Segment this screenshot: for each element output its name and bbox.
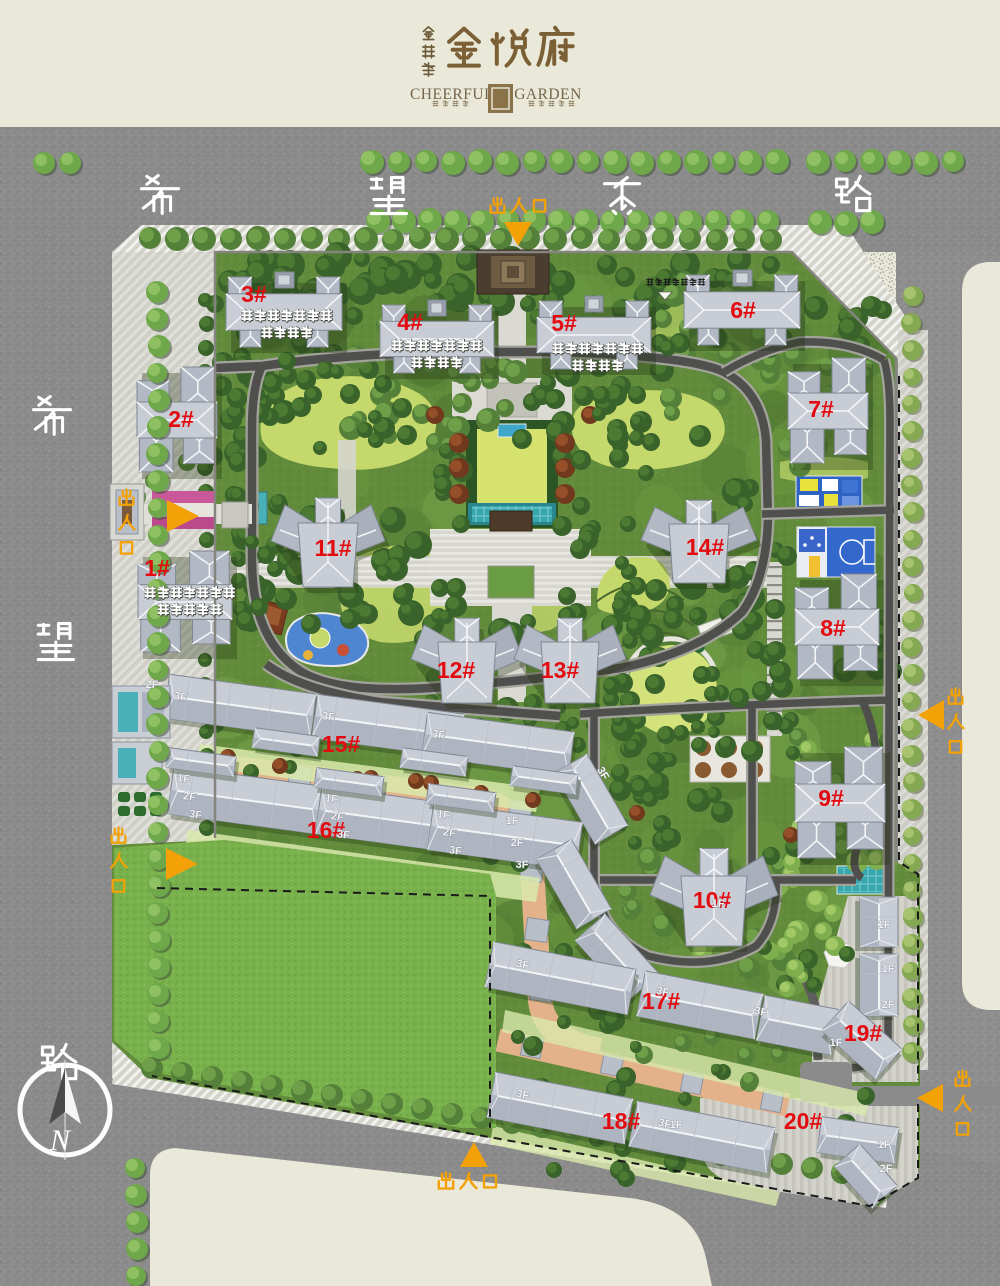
svg-text:20#: 20# [784,1108,823,1134]
svg-text:1F: 1F [882,963,895,975]
svg-text:2F: 2F [882,999,895,1011]
svg-text:1F: 1F [830,1037,843,1049]
svg-text:2F: 2F [442,826,457,840]
svg-text:N: N [49,1124,72,1157]
svg-text:2F: 2F [880,1163,893,1175]
svg-text:3#: 3# [241,281,267,307]
svg-text:6#: 6# [730,297,756,323]
svg-text:18#: 18# [602,1108,641,1134]
svg-text:1F: 1F [878,919,891,931]
svg-text:8#: 8# [820,615,846,641]
svg-text:3F: 3F [448,844,463,858]
svg-text:3F: 3F [515,958,530,972]
svg-text:1#: 1# [144,555,170,581]
svg-text:3F: 3F [321,710,336,724]
svg-text:5#: 5# [551,310,577,336]
svg-text:3F: 3F [516,859,529,871]
svg-text:3F: 3F [336,828,351,842]
svg-text:1F: 1F [878,1139,891,1151]
svg-text:3F: 3F [431,728,446,742]
svg-text:3F: 3F [515,1088,530,1102]
svg-text:2F: 2F [146,679,159,691]
svg-text:1F: 1F [670,1119,683,1131]
svg-text:2F: 2F [330,810,345,824]
svg-text:9#: 9# [818,785,844,811]
svg-text:1F: 1F [324,792,339,806]
svg-text:12#: 12# [437,657,476,683]
svg-text:14#: 14# [686,534,725,560]
svg-text:3F: 3F [173,690,188,704]
svg-text:3F: 3F [188,808,203,822]
svg-text:2F: 2F [511,837,524,849]
svg-text:1F: 1F [176,772,191,786]
svg-text:1F: 1F [436,808,451,822]
svg-text:15#: 15# [322,731,361,757]
svg-text:1F: 1F [712,898,725,910]
svg-text:19#: 19# [844,1020,883,1046]
svg-text:3F: 3F [753,1005,768,1019]
svg-text:2F: 2F [182,790,197,804]
svg-text:11#: 11# [314,535,351,561]
svg-text:3F: 3F [655,985,670,999]
svg-text:1F: 1F [506,815,519,827]
svg-text:7#: 7# [808,396,834,422]
svg-text:GARDEN: GARDEN [514,86,582,103]
svg-text:4#: 4# [397,309,423,335]
svg-text:13#: 13# [541,657,580,683]
svg-text:2#: 2# [168,406,194,432]
svg-text:CHEERFUL: CHEERFUL [410,86,494,103]
